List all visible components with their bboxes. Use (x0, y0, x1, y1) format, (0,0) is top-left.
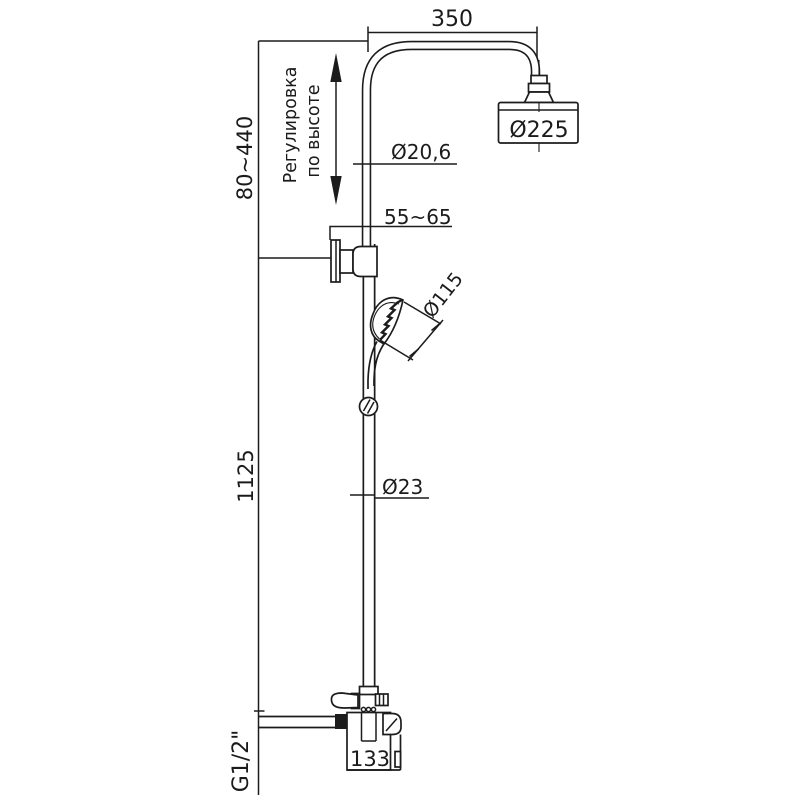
bracket-boss (340, 250, 353, 273)
diverter-lever (331, 693, 358, 708)
adjust-note-line1: Регулировка (281, 67, 301, 184)
shower-column-drawing: 80~440 1125 G1/2" Регулировка по высоте … (0, 0, 800, 800)
dim-350: 350 (431, 7, 473, 32)
lower-pipe-diameter-label: Ø23 (350, 475, 429, 499)
escutcheon-dot-3 (371, 707, 375, 711)
arm-nut (531, 76, 547, 84)
connector-collar (529, 84, 550, 93)
dim-80-440: 80~440 (233, 116, 257, 200)
supply-nut (335, 714, 347, 729)
dim-tick-d115-bottom (410, 349, 419, 357)
technical-drawing-page: 80~440 1125 G1/2" Регулировка по высоте … (0, 0, 800, 800)
dim-d23: Ø23 (382, 475, 423, 499)
bracket-clamp (353, 247, 377, 277)
bracket-depth-label: 55~65 (330, 205, 452, 240)
wall-bracket (331, 240, 377, 282)
dim-5565: 55~65 (384, 205, 452, 229)
adjust-arrowhead-down (330, 176, 341, 205)
adjust-note-line2: по высоте (304, 84, 324, 177)
outlet-fitting (376, 694, 389, 706)
connector-flare (525, 92, 554, 103)
dim-d225: Ø225 (509, 118, 568, 143)
escutcheon-dot-2 (366, 707, 370, 711)
dim-d206: Ø20,6 (391, 140, 451, 164)
mixer-notch (395, 752, 401, 768)
escutcheon-dot-1 (361, 707, 365, 711)
height-adjust-annotation: Регулировка по высоте (281, 53, 342, 205)
supply-pipe (259, 714, 347, 729)
dim-d115: Ø115 (419, 268, 468, 322)
dim-133: 133 (350, 747, 390, 771)
thread-label: G1/2" (229, 730, 254, 793)
slider-knob (360, 398, 378, 416)
dim-tick-d115-top (432, 323, 441, 331)
ext-d115-bottom (380, 340, 413, 360)
adjust-arrowhead-up (330, 53, 341, 82)
dim-1125: 1125 (234, 449, 258, 502)
